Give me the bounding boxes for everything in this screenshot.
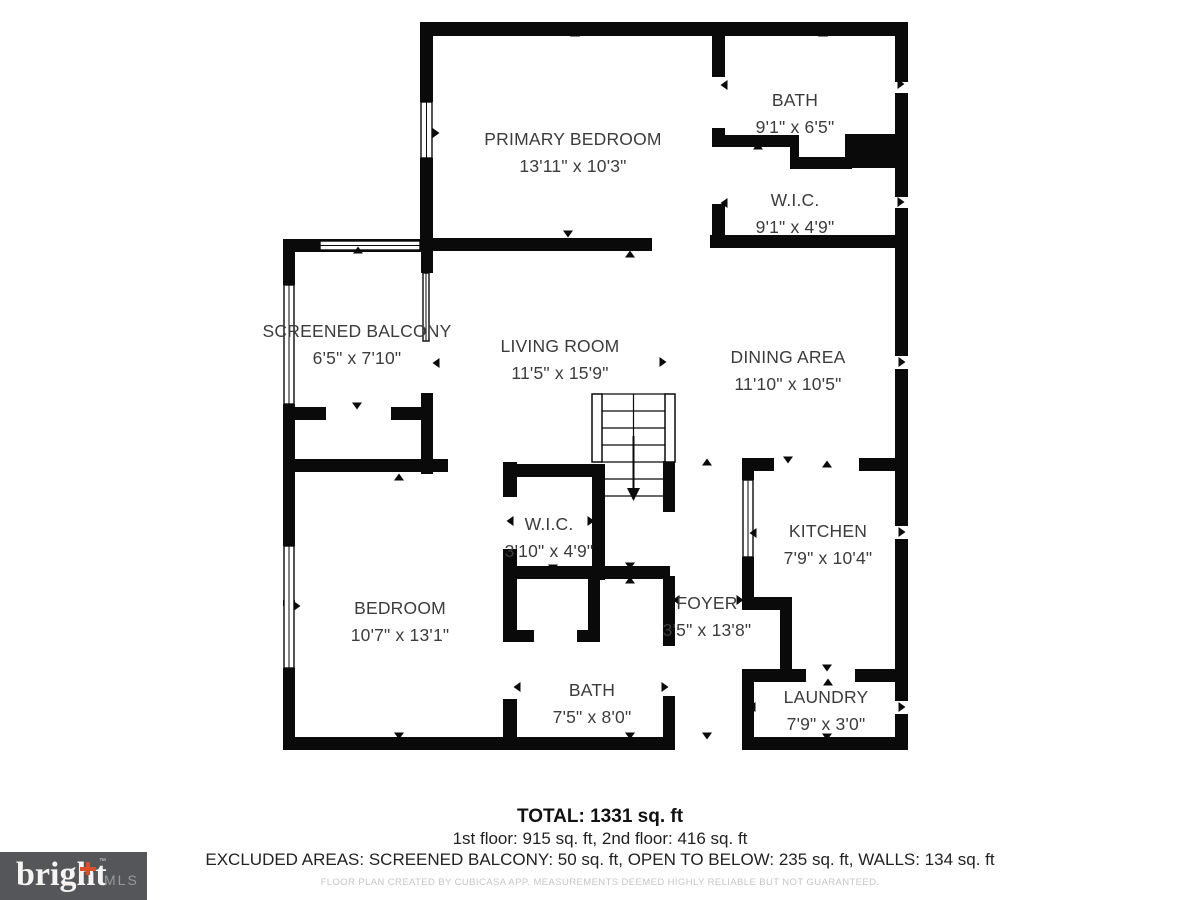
wall-segment	[421, 239, 433, 273]
wall-segment	[663, 461, 675, 512]
floorplan-page: PRIMARY BEDROOM 13'11" x 10'3" BATH 9'1"…	[0, 0, 1200, 900]
door-marker-icon	[294, 601, 301, 611]
door-marker-icon	[514, 682, 521, 692]
wall-segment	[420, 22, 433, 102]
room-name: LIVING ROOM	[501, 333, 620, 360]
wall-segment	[577, 630, 600, 642]
logo-plus-icon	[86, 862, 90, 875]
door-marker-icon	[822, 461, 832, 468]
door-marker-icon	[702, 733, 712, 740]
excluded-areas-text: EXCLUDED AREAS: SCREENED BALCONY: 50 sq.…	[205, 849, 994, 870]
room-label-foyer: FOYER 3'5" x 13'8"	[663, 590, 752, 644]
wall-segment	[712, 22, 725, 77]
room-dims: 3'5" x 13'8"	[663, 617, 752, 644]
wall-segment	[503, 566, 670, 579]
room-dims: 13'11" x 10'3"	[484, 153, 661, 180]
room-dims: 11'5" x 15'9"	[501, 360, 620, 387]
wall-segment	[592, 464, 605, 580]
wall-segment	[283, 407, 326, 420]
logo-suffix: MLS	[104, 872, 139, 888]
door-marker-icon	[660, 357, 667, 367]
wall-segment	[283, 459, 448, 472]
room-label-kitchen: KITCHEN 7'9" x 10'4"	[784, 518, 873, 572]
wall-segment	[780, 610, 792, 677]
room-name: PRIMARY BEDROOM	[484, 126, 661, 153]
door-marker-icon	[433, 128, 440, 138]
room-name: BATH	[756, 87, 835, 114]
door-marker-icon	[783, 457, 793, 464]
room-label-primary-bedroom: PRIMARY BEDROOM 13'11" x 10'3"	[484, 126, 661, 180]
room-label-living-room: LIVING ROOM 11'5" x 15'9"	[501, 333, 620, 387]
door-marker-icon	[352, 403, 362, 410]
room-dims: 9'1" x 4'9"	[756, 214, 835, 241]
wall-segment	[503, 699, 517, 740]
logo-trademark: ™	[99, 858, 106, 865]
room-dims: 7'5" x 8'0"	[553, 704, 632, 731]
door-marker-icon	[721, 80, 728, 90]
wall-segment	[895, 248, 908, 750]
wall-segment	[391, 407, 433, 420]
wall-segment	[895, 93, 908, 197]
room-label-wic-lower: W.I.C. 3'10" x 4'9"	[505, 511, 594, 565]
disclaimer-text: FLOOR PLAN CREATED BY CUBICASA APP. MEAS…	[205, 877, 994, 888]
door-marker-icon	[625, 251, 635, 258]
room-name: W.I.C.	[756, 187, 835, 214]
wall-segment	[420, 22, 908, 36]
wall-segment	[503, 630, 534, 642]
room-dims: 7'9" x 10'4"	[784, 545, 873, 572]
room-label-screened-balcony: SCREENED BALCONY 6'5" x 7'10"	[263, 318, 452, 372]
room-name: FOYER	[663, 590, 752, 617]
room-name: DINING AREA	[730, 344, 845, 371]
room-name: LAUNDRY	[784, 684, 869, 711]
door-marker-icon	[662, 682, 669, 692]
wall-segment	[283, 737, 675, 750]
wall-segment	[742, 737, 908, 750]
room-label-dining-area: DINING AREA 11'10" x 10'5"	[730, 344, 845, 398]
room-name: KITCHEN	[784, 518, 873, 545]
door-marker-icon	[702, 459, 712, 466]
room-dims: 9'1" x 6'5"	[756, 114, 835, 141]
floor-areas-text: 1st floor: 915 sq. ft, 2nd floor: 416 sq…	[205, 828, 994, 849]
room-label-bedroom: BEDROOM 10'7" x 13'1"	[351, 595, 450, 649]
stair-rail	[665, 394, 675, 462]
bright-mls-logo: bright ™ MLS	[0, 852, 147, 900]
total-area-text: TOTAL: 1331 sq. ft	[205, 806, 994, 828]
room-name: BATH	[553, 677, 632, 704]
room-label-wic-upper: W.I.C. 9'1" x 4'9"	[756, 187, 835, 241]
room-name: BEDROOM	[351, 595, 450, 622]
wall-segment	[742, 458, 774, 471]
door-marker-icon	[563, 231, 573, 238]
door-marker-icon	[822, 665, 832, 672]
logo-word: bright	[16, 856, 107, 894]
stair-down-arrow-icon	[627, 488, 640, 501]
room-name: W.I.C.	[505, 511, 594, 538]
room-name: SCREENED BALCONY	[263, 318, 452, 345]
room-dims: 7'9" x 3'0"	[784, 711, 869, 738]
room-dims: 6'5" x 7'10"	[263, 345, 452, 372]
door-marker-icon	[394, 474, 404, 481]
room-label-laundry: LAUNDRY 7'9" x 3'0"	[784, 684, 869, 738]
door-marker-icon	[898, 197, 905, 207]
room-dims: 3'10" x 4'9"	[505, 538, 594, 565]
wall-segment	[663, 696, 675, 740]
wall-segment	[283, 404, 295, 546]
room-label-bath-lower: BATH 7'5" x 8'0"	[553, 677, 632, 731]
room-dims: 11'10" x 10'5"	[730, 371, 845, 398]
room-dims: 10'7" x 13'1"	[351, 622, 450, 649]
wall-segment	[420, 158, 433, 250]
wall-segment	[895, 22, 908, 82]
wall-segment	[895, 208, 908, 248]
stair-rail	[592, 394, 602, 462]
area-summary: TOTAL: 1331 sq. ft 1st floor: 915 sq. ft…	[205, 806, 994, 888]
wall-segment	[712, 204, 725, 248]
wall-segment	[420, 238, 652, 251]
room-label-bath-upper: BATH 9'1" x 6'5"	[756, 87, 835, 141]
